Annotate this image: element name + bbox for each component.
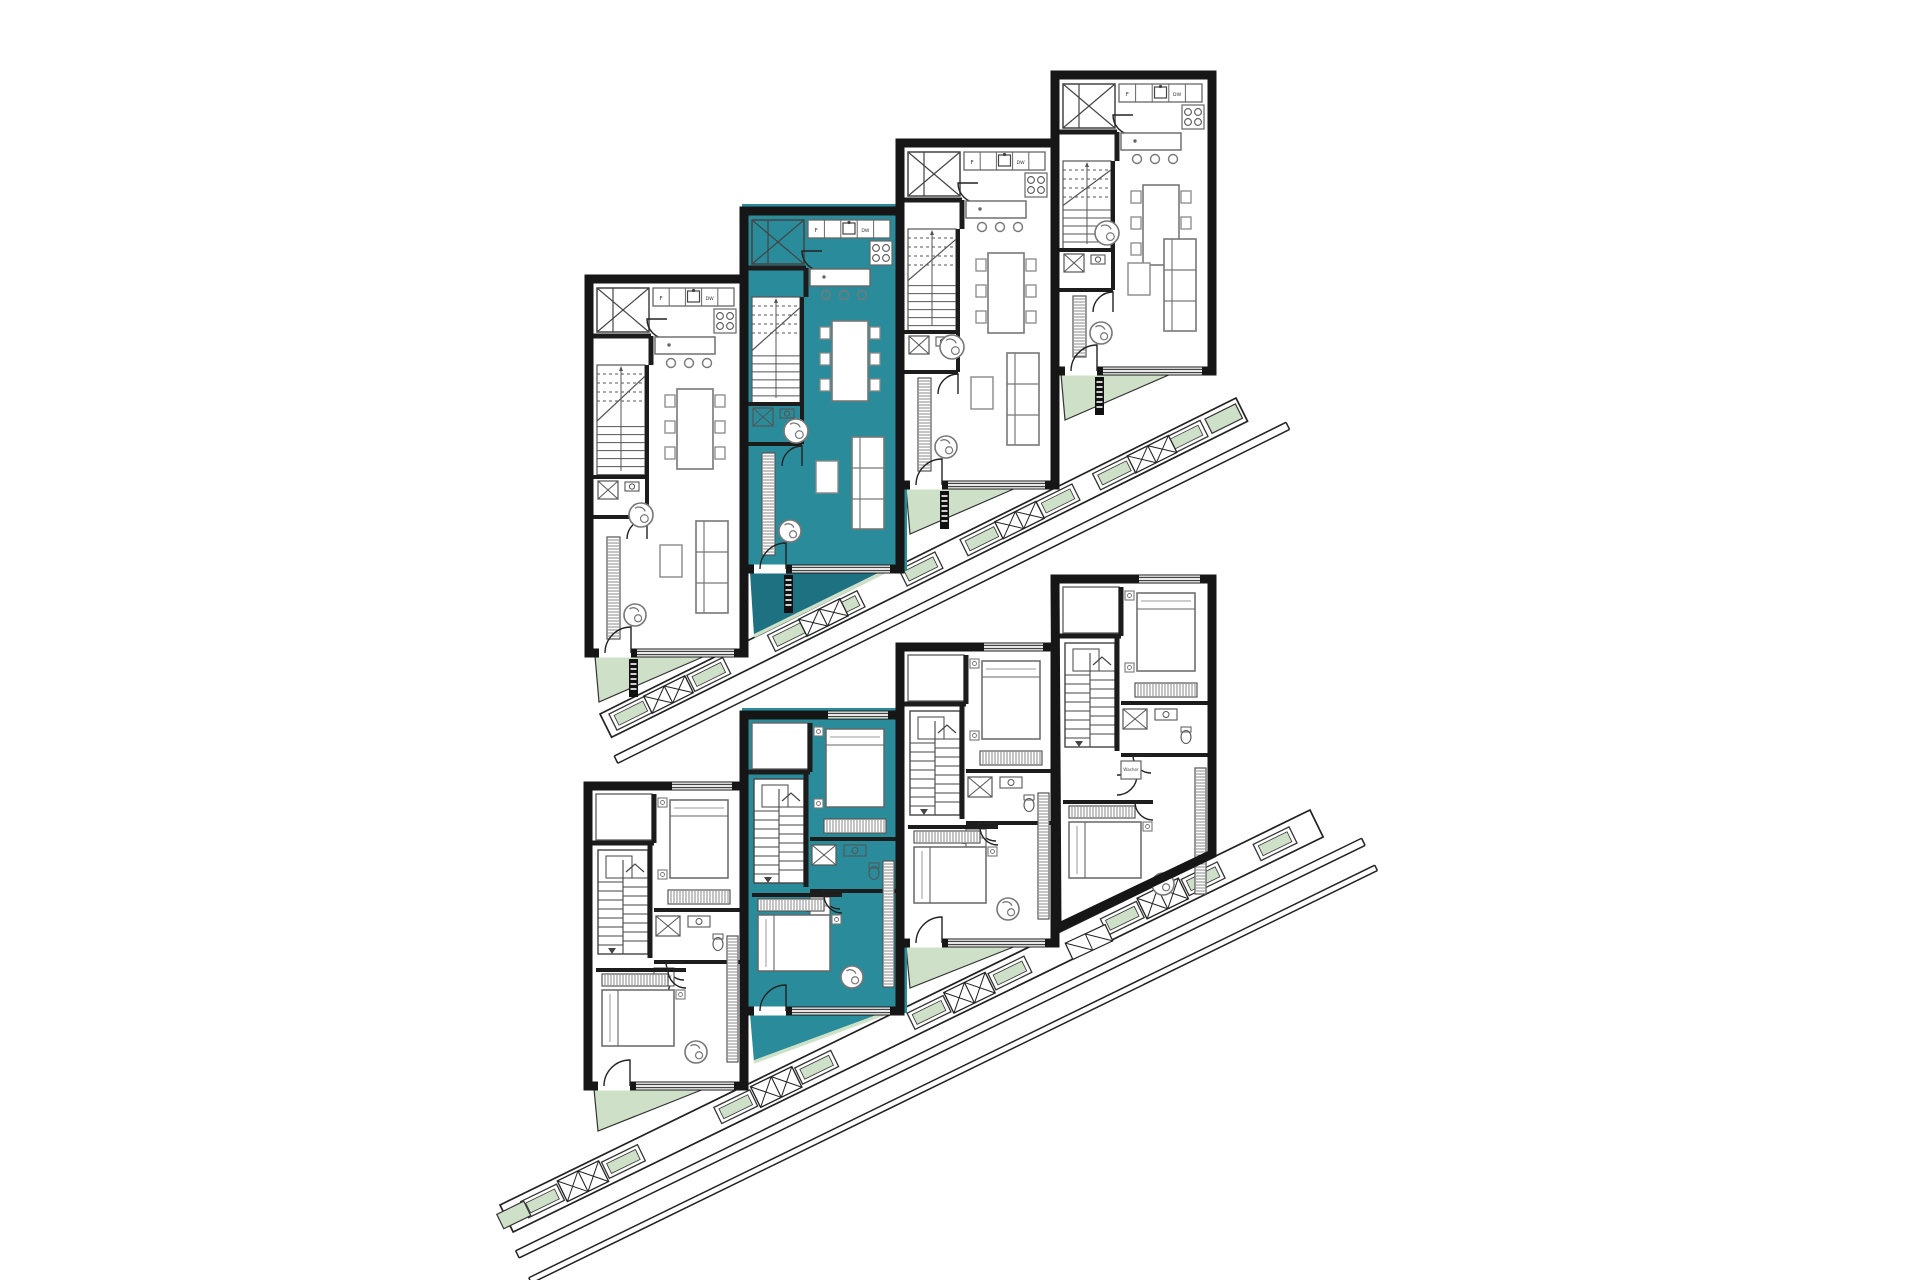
wardrobe-shelving — [1069, 806, 1135, 818]
plant-icon — [784, 419, 808, 443]
plant-icon — [940, 335, 964, 359]
svg-text:Washer: Washer — [1123, 767, 1139, 772]
wardrobe-shelving — [602, 974, 668, 986]
staircase — [597, 365, 645, 477]
floor-plan-canvas: FDWFDWFDWFDWWasherWasherWasherWasher — [0, 0, 1920, 1280]
terrace-stair-ladder — [629, 659, 638, 697]
wardrobe-shelving — [980, 751, 1042, 765]
unit-3-living[interactable]: FDW — [900, 143, 1055, 487]
wardrobe-shelving — [668, 890, 730, 904]
terrace-stair-ladder — [940, 491, 949, 529]
wardrobe-shelving — [1195, 768, 1206, 894]
plant-icon — [935, 436, 957, 458]
unit-2-bedroom[interactable]: Washer — [742, 708, 907, 1013]
staircase — [754, 779, 804, 883]
unit-2-living[interactable]: FDW — [742, 204, 907, 571]
unit-1-bedroom[interactable]: Washer — [588, 784, 744, 1087]
plant-icon — [779, 520, 801, 542]
svg-text:DW: DW — [1017, 160, 1026, 166]
wardrobe-shelving — [727, 936, 738, 1062]
kitchen-counter: FDW — [808, 220, 890, 238]
bed-icon — [602, 990, 685, 1046]
svg-text:DW: DW — [861, 228, 870, 234]
staircase — [598, 850, 648, 954]
bed-icon — [914, 847, 997, 903]
svg-text:F: F — [815, 228, 818, 234]
cooktop-icon — [1025, 173, 1047, 197]
wardrobe-shelving — [607, 537, 620, 639]
unit-1-living[interactable]: FDW — [589, 279, 744, 655]
plant-icon — [841, 966, 863, 988]
svg-text:DW: DW — [1173, 92, 1182, 98]
wardrobe-shelving — [1135, 683, 1197, 697]
svg-text:F: F — [660, 296, 663, 302]
staircase — [908, 229, 956, 332]
staircase — [1065, 643, 1115, 747]
washer-closet: Washer — [1121, 761, 1141, 779]
plant-icon — [997, 898, 1019, 920]
staircase — [752, 297, 800, 404]
kitchen-counter: FDW — [964, 152, 1045, 170]
dining-table — [820, 321, 880, 401]
wardrobe-shelving — [883, 861, 894, 987]
wardrobe-shelving — [824, 819, 886, 833]
svg-text:F: F — [971, 160, 974, 166]
wardrobe-shelving — [762, 453, 775, 555]
bed-icon — [758, 915, 841, 971]
plant-icon — [624, 604, 646, 626]
dining-table — [976, 253, 1036, 333]
floor-plan-page: FDWFDWFDWFDWWasherWasherWasherWasher — [0, 0, 1920, 1280]
cooktop-icon — [714, 309, 736, 333]
plant-icon — [1090, 322, 1112, 344]
staircase — [910, 711, 960, 815]
svg-text:F: F — [1126, 92, 1129, 98]
kitchen-counter: FDW — [653, 288, 734, 306]
wardrobe-shelving — [758, 899, 824, 911]
wardrobe-shelving — [918, 378, 931, 471]
svg-text:DW: DW — [706, 296, 715, 302]
cooktop-icon — [870, 241, 892, 265]
unit-4-living[interactable]: FDW — [1055, 75, 1212, 373]
wardrobe-shelving — [1038, 793, 1049, 919]
terrace-stair-ladder — [1095, 377, 1104, 415]
kitchen-counter: FDW — [1119, 84, 1202, 102]
unit-3-bedroom[interactable]: Washer — [900, 645, 1055, 944]
wardrobe-shelving — [914, 831, 980, 843]
plant-icon — [629, 503, 653, 527]
dining-table — [665, 389, 725, 469]
plant-icon — [685, 1041, 707, 1063]
terrace-stair-ladder — [784, 575, 793, 613]
bed-icon — [1069, 822, 1152, 878]
cooktop-icon — [1182, 105, 1204, 129]
plant-icon — [1095, 221, 1119, 245]
